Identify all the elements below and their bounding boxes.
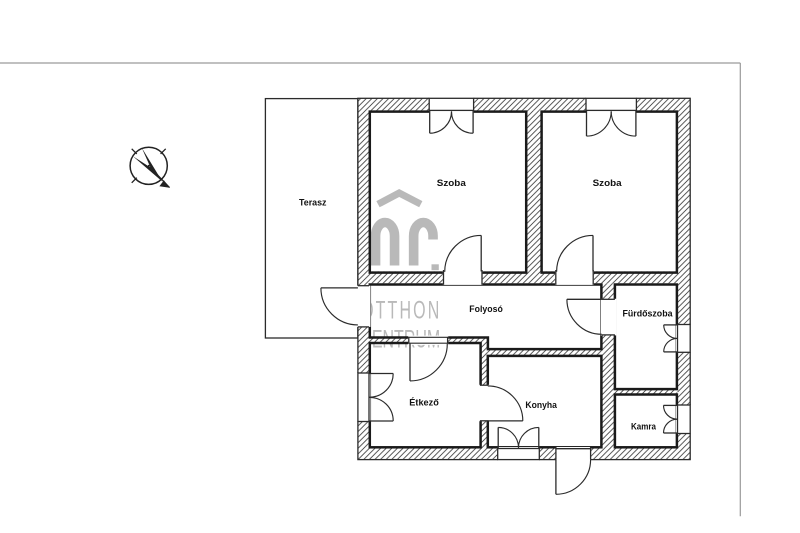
svg-text:Folyosó: Folyosó xyxy=(469,304,503,315)
svg-text:Fürdőszoba: Fürdőszoba xyxy=(623,309,674,320)
svg-text:Terasz: Terasz xyxy=(299,198,327,209)
svg-text:Étkező: Étkező xyxy=(409,398,439,409)
svg-text:Konyha: Konyha xyxy=(525,400,557,411)
svg-text:Szoba: Szoba xyxy=(437,178,467,189)
svg-text:Szoba: Szoba xyxy=(593,178,623,189)
svg-text:Kamra: Kamra xyxy=(631,422,657,433)
svg-text:OTTHON: OTTHON xyxy=(361,297,441,324)
